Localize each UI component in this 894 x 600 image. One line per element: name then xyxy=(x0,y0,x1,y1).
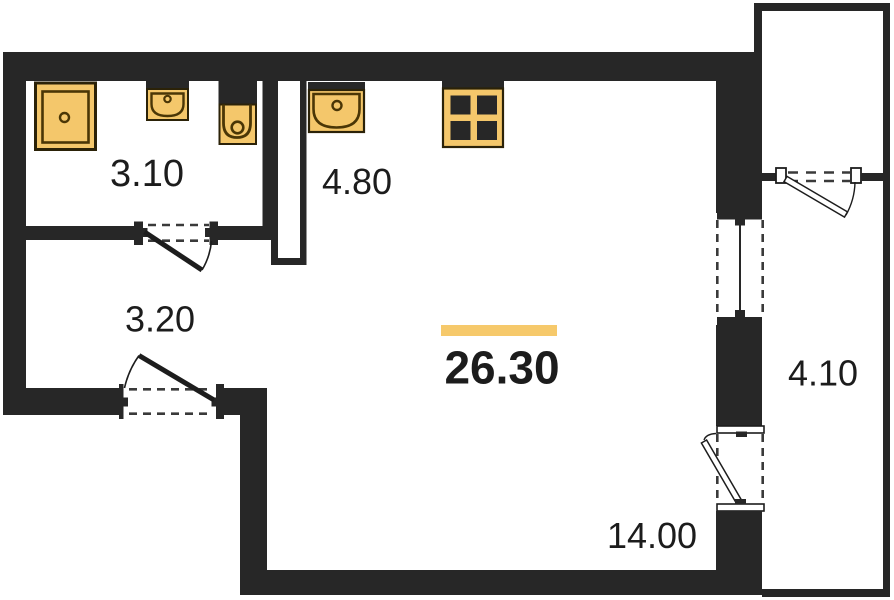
svg-text:14.00: 14.00 xyxy=(607,515,697,556)
svg-text:4.10: 4.10 xyxy=(788,353,858,394)
svg-text:3.20: 3.20 xyxy=(125,299,195,340)
svg-text:3.10: 3.10 xyxy=(110,153,184,195)
svg-text:4.80: 4.80 xyxy=(322,161,392,202)
svg-text:26.30: 26.30 xyxy=(444,342,559,394)
